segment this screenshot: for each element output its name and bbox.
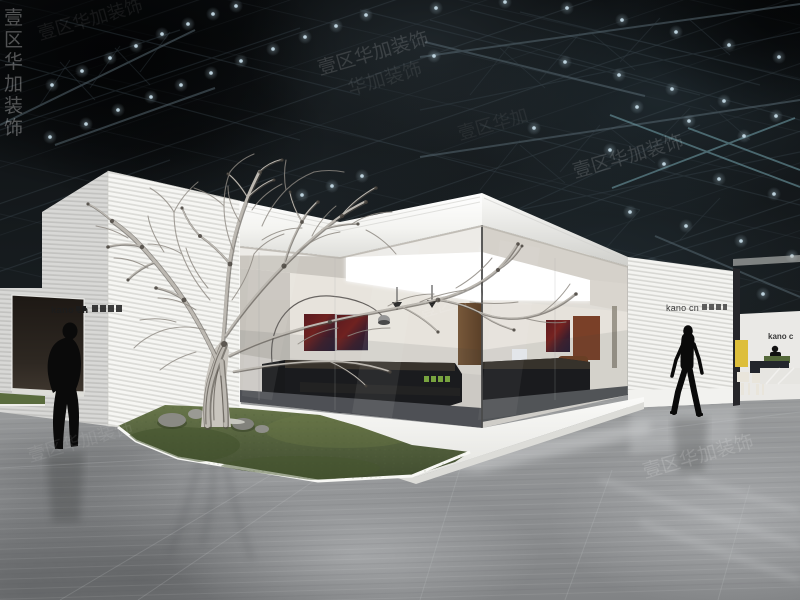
svg-text:饰: 饰 <box>4 117 23 139</box>
svg-text:壹: 壹 <box>4 7 23 29</box>
svg-text:区: 区 <box>4 30 23 51</box>
svg-text:kano cn: kano cn <box>666 303 699 313</box>
svg-text:kano c: kano c <box>768 332 794 341</box>
svg-text:装: 装 <box>4 95 23 117</box>
svg-text:加: 加 <box>4 73 23 95</box>
svg-text:华: 华 <box>4 51 23 73</box>
